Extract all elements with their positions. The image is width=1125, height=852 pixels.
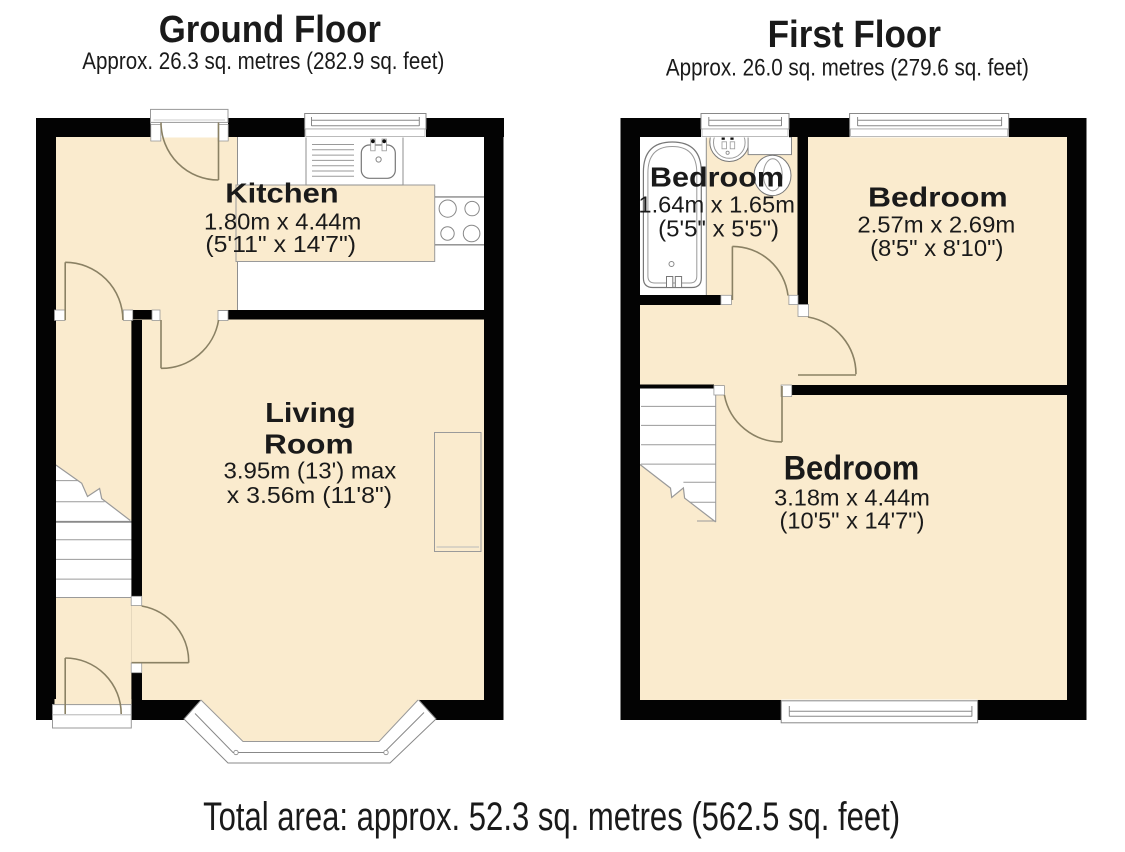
svg-text:Kitchen: Kitchen [225,178,338,209]
svg-text:(10'5" x 14'7"): (10'5" x 14'7") [780,508,925,534]
svg-text:(8'5" x 8'10"): (8'5" x 8'10") [870,235,1003,261]
svg-text:Approx. 26.0 sq. metres (279.6: Approx. 26.0 sq. metres (279.6 sq. feet) [666,55,1029,82]
svg-text:First Floor: First Floor [768,14,942,56]
svg-text:Ground Floor: Ground Floor [159,9,381,51]
svg-text:Total area: approx. 52.3 sq. m: Total area: approx. 52.3 sq. metres (562… [203,795,900,839]
svg-text:Bedroom: Bedroom [650,162,784,193]
svg-text:(5'11" x 14'7"): (5'11" x 14'7") [205,231,356,257]
svg-text:Bedroom: Bedroom [868,182,1008,213]
svg-text:3.95m (13') max: 3.95m (13') max [224,458,397,484]
svg-text:2.57m x 2.69m: 2.57m x 2.69m [857,212,1015,238]
svg-text:Room: Room [264,429,354,460]
svg-text:1.64m x 1.65m: 1.64m x 1.65m [638,192,795,218]
svg-text:Bedroom: Bedroom [784,450,920,488]
svg-text:(5'5" x 5'5"): (5'5" x 5'5") [658,216,779,242]
svg-text:Approx. 26.3 sq. metres (282.9: Approx. 26.3 sq. metres (282.9 sq. feet) [82,48,444,75]
svg-text:Living: Living [265,397,356,428]
svg-text:x 3.56m (11'8"): x 3.56m (11'8") [227,482,392,508]
